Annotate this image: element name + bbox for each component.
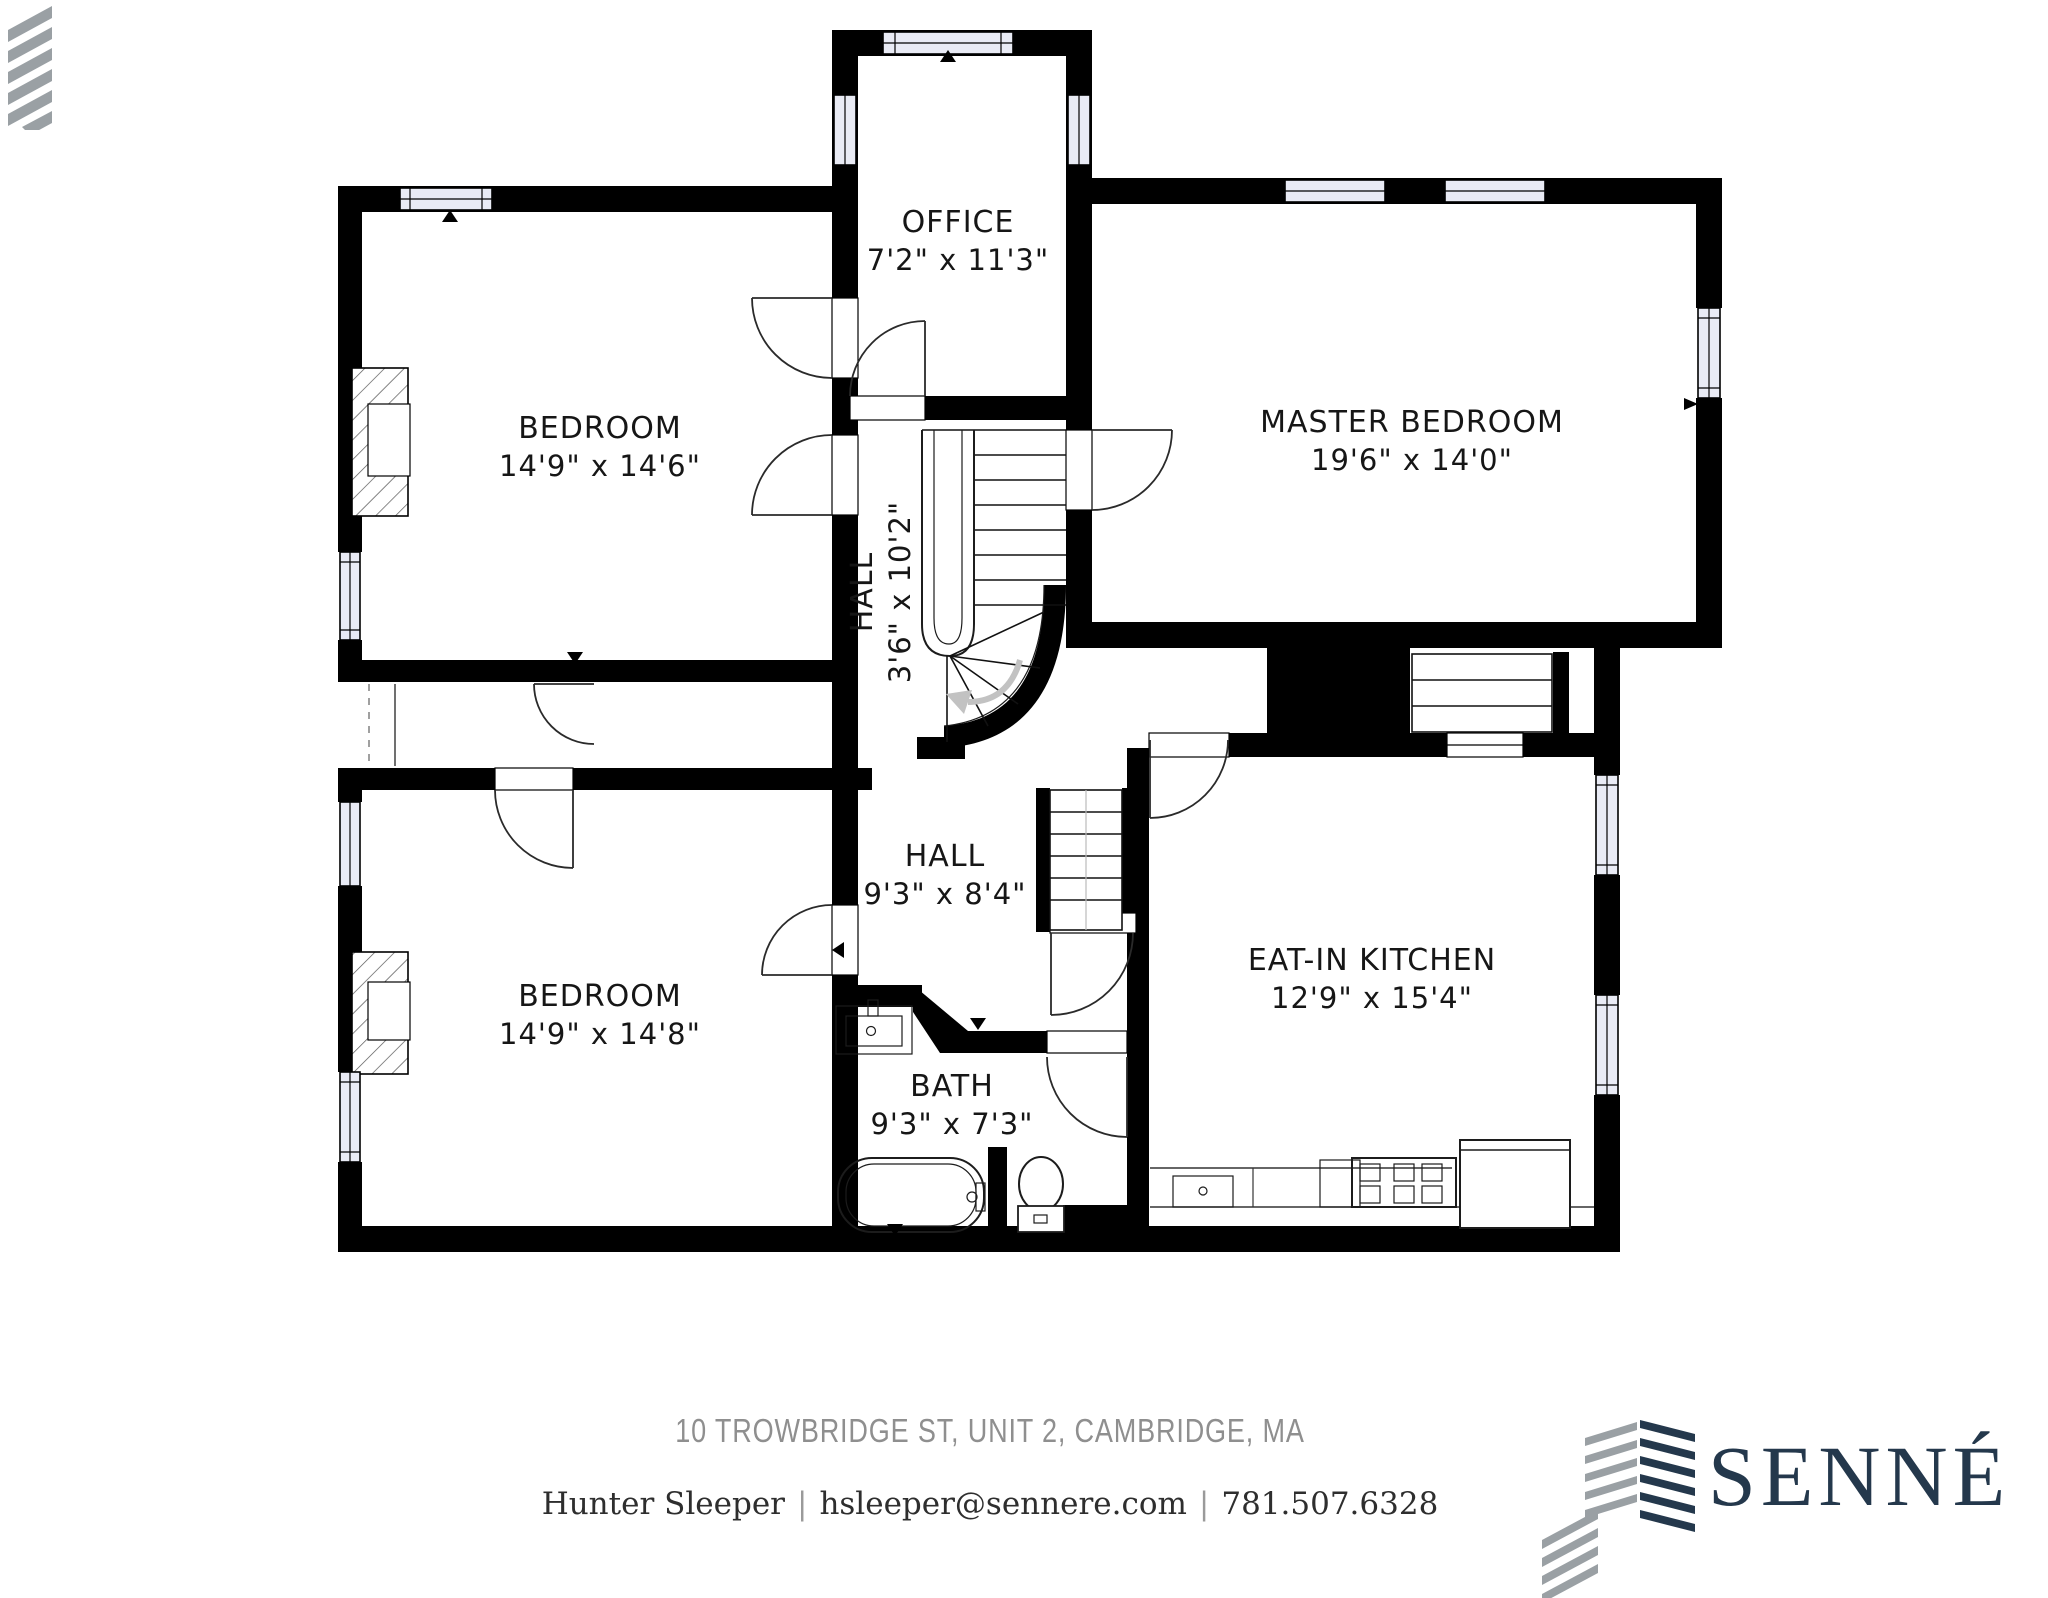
- senne-logo: SENNÉ: [1540, 1398, 2040, 1598]
- room-name: OFFICE: [902, 205, 1015, 240]
- room-label-bedroom-top: BEDROOM 14'9" x 14'6": [499, 411, 701, 483]
- window: [1445, 180, 1545, 202]
- room-name: EAT-IN KITCHEN: [1248, 943, 1496, 978]
- closet-shelves: [1412, 654, 1552, 732]
- room-dims: 14'9" x 14'8": [499, 1017, 701, 1051]
- window: [340, 552, 360, 640]
- chimney-hatch: [352, 368, 410, 1074]
- window: [400, 188, 492, 210]
- door-arc: [1051, 933, 1133, 1015]
- room-name: BEDROOM: [518, 979, 682, 1014]
- room-name: BATH: [910, 1069, 994, 1104]
- room-dims: 3'6" x 10'2": [883, 501, 917, 683]
- separator: |: [785, 1486, 819, 1522]
- door-arc: [752, 435, 832, 515]
- senne-logo-text: SENNÉ: [1708, 1426, 2010, 1526]
- door-arc: [752, 298, 832, 378]
- room-name: HALL: [845, 552, 880, 633]
- room-name: HALL: [905, 839, 986, 874]
- closet-band: [369, 684, 395, 766]
- room-dims: 7'2" x 11'3": [867, 243, 1049, 277]
- room-dims: 9'3" x 7'3": [870, 1107, 1033, 1141]
- stair-direction-arrow: [968, 660, 1020, 702]
- refrigerator: [1460, 1140, 1570, 1228]
- room-label-master-bedroom: MASTER BEDROOM 19'6" x 14'0": [1260, 405, 1564, 477]
- agent-name: Hunter Sleeper: [542, 1486, 785, 1522]
- door-arc: [534, 684, 594, 744]
- kitchen-fixtures: [1150, 1140, 1594, 1228]
- winder-staircase: [922, 430, 1066, 742]
- toilet: [1018, 1157, 1064, 1232]
- room-label-hall: HALL 9'3" x 8'4": [863, 839, 1026, 911]
- room-name: MASTER BEDROOM: [1260, 405, 1564, 440]
- floor-plan: OFFICE 7'2" x 11'3" BEDROOM 14'9" x 14'6…: [0, 0, 2048, 1583]
- room-label-bath: BATH 9'3" x 7'3": [870, 1069, 1033, 1141]
- window: [340, 802, 360, 886]
- dishwasher: [1320, 1160, 1360, 1207]
- room-dims: 12'9" x 15'4": [1271, 981, 1473, 1015]
- walls: [338, 30, 1722, 1252]
- room-label-eat-in-kitchen: EAT-IN KITCHEN 12'9" x 15'4": [1248, 943, 1496, 1015]
- window: [1596, 775, 1618, 875]
- bathtub: [838, 1158, 985, 1232]
- door-arc: [850, 321, 925, 396]
- window: [834, 95, 856, 165]
- room-dims: 9'3" x 8'4": [863, 877, 1026, 911]
- stove: [1352, 1158, 1456, 1207]
- room-name: BEDROOM: [518, 411, 682, 446]
- window: [340, 1072, 360, 1162]
- room-label-office: OFFICE 7'2" x 11'3": [867, 205, 1049, 277]
- room-dims: 19'6" x 14'0": [1311, 443, 1513, 477]
- window: [1285, 180, 1385, 202]
- window: [1698, 308, 1720, 398]
- door-arc: [1047, 1057, 1127, 1137]
- sliding-door: [1447, 733, 1523, 757]
- door-arc: [495, 790, 573, 868]
- agent-phone: 781.507.6328: [1221, 1486, 1438, 1522]
- door-arc: [1092, 430, 1172, 510]
- room-dims: 14'9" x 14'6": [499, 449, 701, 483]
- kitchen-sink: [1173, 1176, 1233, 1207]
- room-label-bedroom-bottom: BEDROOM 14'9" x 14'8": [499, 979, 701, 1051]
- straight-staircase: [1050, 790, 1122, 930]
- window: [1068, 95, 1090, 165]
- senne-logo-mark-icon: [1540, 1398, 1705, 1598]
- door-arc: [762, 905, 832, 975]
- window: [1596, 995, 1618, 1095]
- agent-email: hsleeper@sennere.com: [819, 1486, 1186, 1522]
- floorplan-page: { "plan": { "rooms": [ {"id": "office", …: [0, 0, 2048, 1583]
- separator: |: [1187, 1486, 1221, 1522]
